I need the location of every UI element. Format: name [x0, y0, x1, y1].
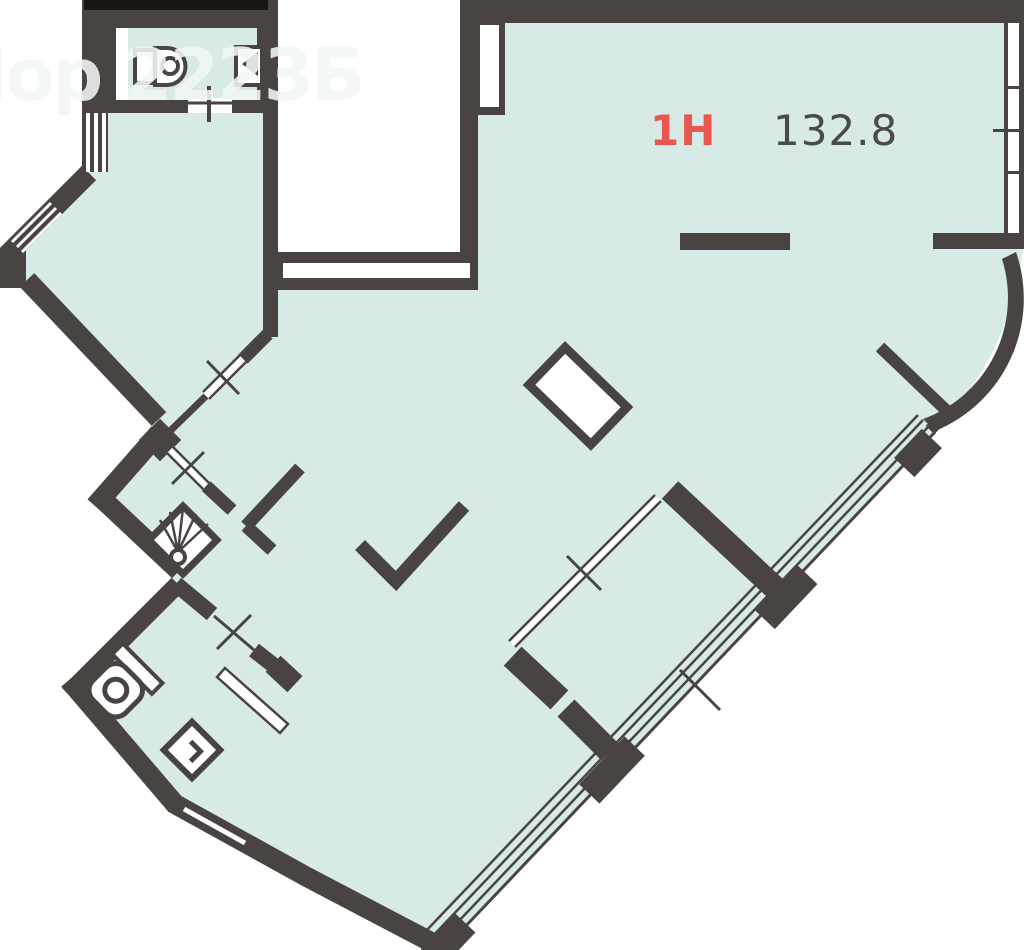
- watermark: Нор 2223Б: [0, 33, 363, 117]
- top-bar: [84, 0, 268, 10]
- unit-label: 1Н: [650, 106, 716, 155]
- area-label: 132.8: [773, 106, 898, 155]
- floor-plan-page: 1Н 132.8 Нор 2223Б: [0, 0, 1024, 950]
- floor-plan-svg: 1Н 132.8 Нор 2223Б: [0, 0, 1024, 950]
